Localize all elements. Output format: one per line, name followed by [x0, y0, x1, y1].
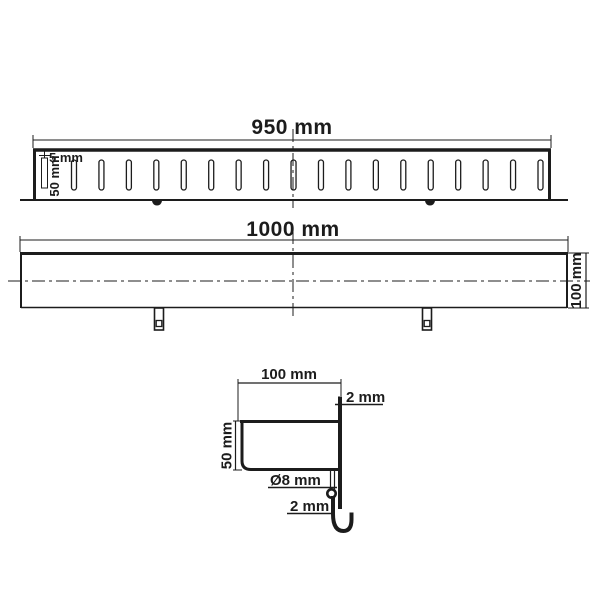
- drain-channel-drawing: 950 mm 5 mm 50 mm 1000 mm: [0, 0, 600, 600]
- grate-slot: [99, 160, 104, 190]
- grate-slot: [428, 160, 433, 190]
- grate-slot: [538, 160, 543, 190]
- profile-left-wall-and-bottom: [242, 421, 339, 470]
- channel-height-dimension-label: 100 mm: [568, 253, 585, 309]
- anchor-tab-left: [155, 308, 164, 330]
- grate-slot: [511, 160, 516, 190]
- section-extension-lines: [238, 383, 341, 421]
- fastener-bump-right: [425, 201, 435, 206]
- grate-slot: [373, 160, 378, 190]
- hook-thickness-dimension-label: 2 mm: [290, 498, 329, 515]
- grate-slot: [264, 160, 269, 190]
- grate-slot: [291, 160, 296, 190]
- slot-length-dimension-label: 50 mm: [47, 155, 62, 196]
- grate-slot: [483, 160, 488, 190]
- grate-slot: [126, 160, 131, 190]
- section-depth-dimension-label: 50 mm: [219, 422, 236, 470]
- grate-slot: [236, 160, 241, 190]
- anchor-hook: [333, 496, 352, 531]
- grate-slot: [318, 160, 323, 190]
- fastener-bump-left: [152, 201, 162, 206]
- side-view-channel: 1000 mm 100 mm: [8, 218, 590, 330]
- top-view-length-dimension-label: 950 mm: [251, 116, 332, 139]
- grate-slot: [181, 160, 186, 190]
- anchor-tab-right: [423, 308, 432, 330]
- edge-thickness-dimension-label: 2 mm: [346, 389, 385, 406]
- hole-diameter-dimension-label: Ø8 mm: [270, 472, 321, 489]
- grate-slot: [154, 160, 159, 190]
- technical-drawing-page: 950 mm 5 mm 50 mm 1000 mm: [0, 0, 600, 600]
- grate-slot: [346, 160, 351, 190]
- grate-slot: [209, 160, 214, 190]
- grate-slot: [401, 160, 406, 190]
- grate-slot: [456, 160, 461, 190]
- cross-section-view: 100 mm 2 mm 50 mm Ø8 mm 2 mm: [219, 366, 386, 531]
- top-view-grate: 950 mm 5 mm 50 mm: [20, 116, 568, 208]
- section-width-dimension-label: 100 mm: [261, 366, 317, 383]
- grate-slots: [72, 160, 544, 190]
